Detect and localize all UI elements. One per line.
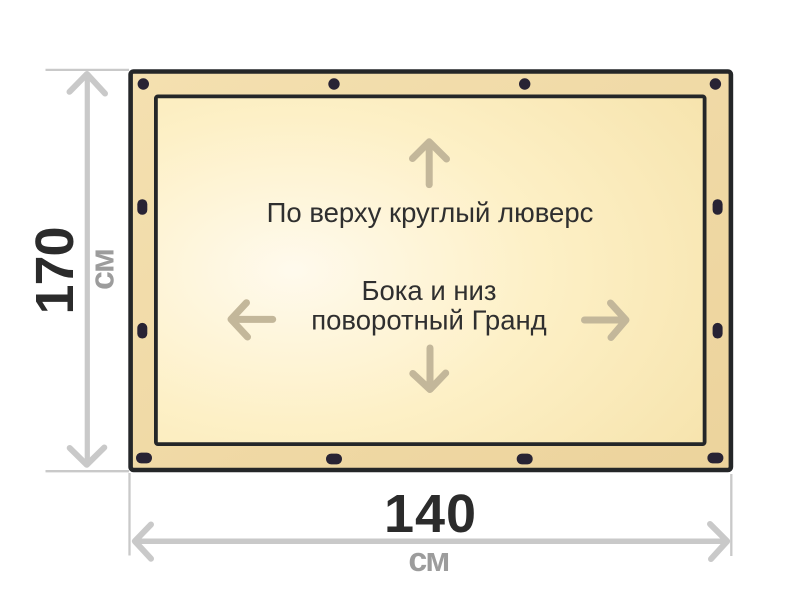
svg-text:см: см xyxy=(408,541,448,579)
svg-text:По верху круглый люверс: По верху круглый люверс xyxy=(267,197,594,228)
svg-text:см: см xyxy=(84,250,122,290)
svg-text:поворотный Гранд: поворотный Гранд xyxy=(311,305,546,336)
svg-text:140: 140 xyxy=(384,484,477,544)
svg-text:Бока и низ: Бока и низ xyxy=(361,275,496,306)
svg-text:170: 170 xyxy=(25,227,85,314)
